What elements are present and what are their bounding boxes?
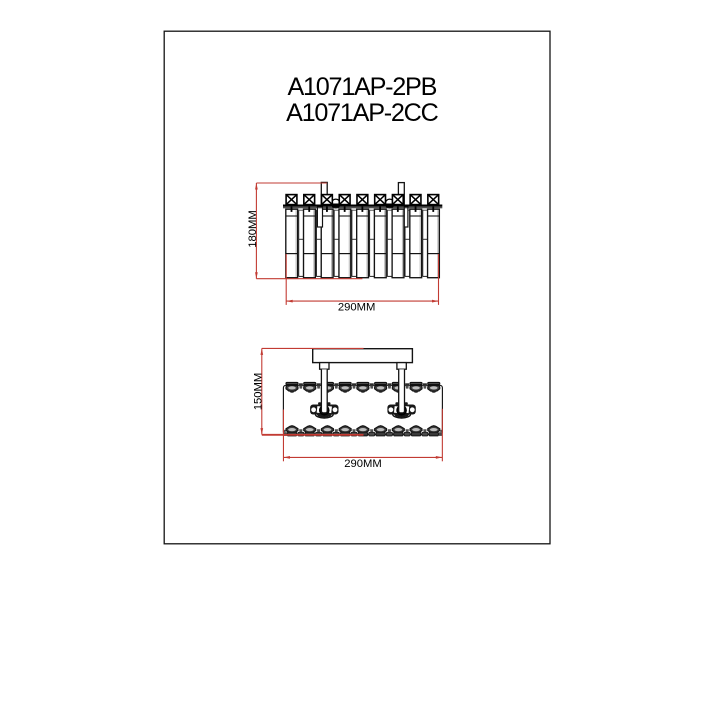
svg-text:290MM: 290MM	[344, 458, 382, 470]
svg-text:A1071AP-2PB: A1071AP-2PB	[287, 73, 436, 101]
svg-text:A1071AP-2CC: A1071AP-2CC	[286, 99, 439, 127]
svg-text:180MM: 180MM	[247, 210, 259, 248]
svg-text:290MM: 290MM	[338, 301, 376, 313]
svg-text:150MM: 150MM	[252, 373, 264, 411]
